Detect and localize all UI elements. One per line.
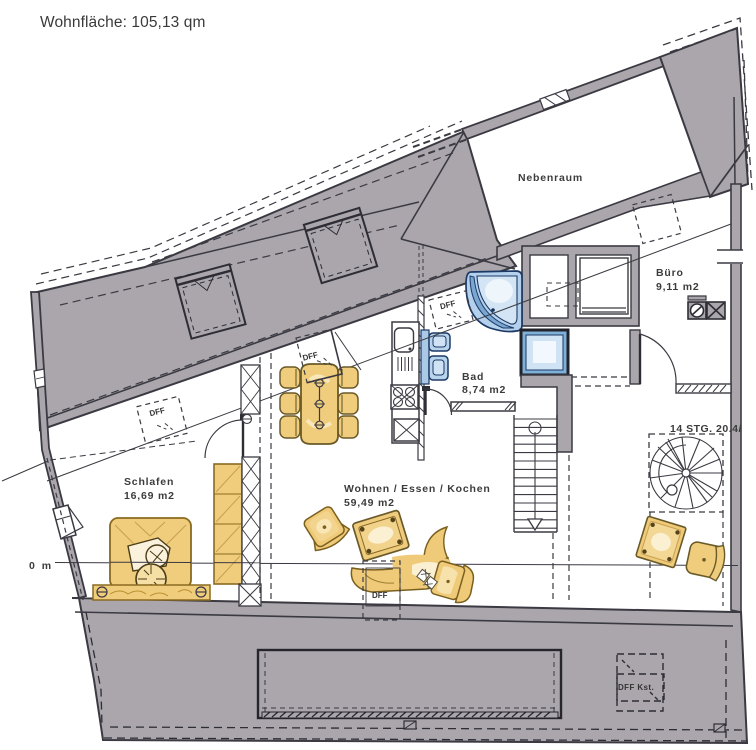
svg-text:DFF: DFF — [372, 591, 388, 600]
svg-text:14 STG. 20.4/: 14 STG. 20.4/ — [670, 423, 742, 435]
svg-text:59,49 m2: 59,49 m2 — [344, 497, 395, 509]
svg-text:DFF Kst.: DFF Kst. — [618, 683, 654, 692]
svg-text:9,11 m2: 9,11 m2 — [656, 281, 700, 293]
svg-text:Bad: Bad — [462, 371, 484, 383]
svg-text:Schlafen: Schlafen — [124, 476, 174, 488]
svg-text:Nebenraum: Nebenraum — [518, 172, 583, 184]
svg-text:Wohnen / Essen / Kochen: Wohnen / Essen / Kochen — [344, 483, 491, 495]
svg-text:Wohnfläche: 105,13 qm: Wohnfläche: 105,13 qm — [40, 14, 206, 31]
svg-text:Büro: Büro — [656, 267, 684, 279]
svg-text:16,69 m2: 16,69 m2 — [124, 490, 175, 502]
svg-text:8,74 m2: 8,74 m2 — [462, 384, 506, 396]
svg-text:0 m: 0 m — [29, 560, 53, 572]
